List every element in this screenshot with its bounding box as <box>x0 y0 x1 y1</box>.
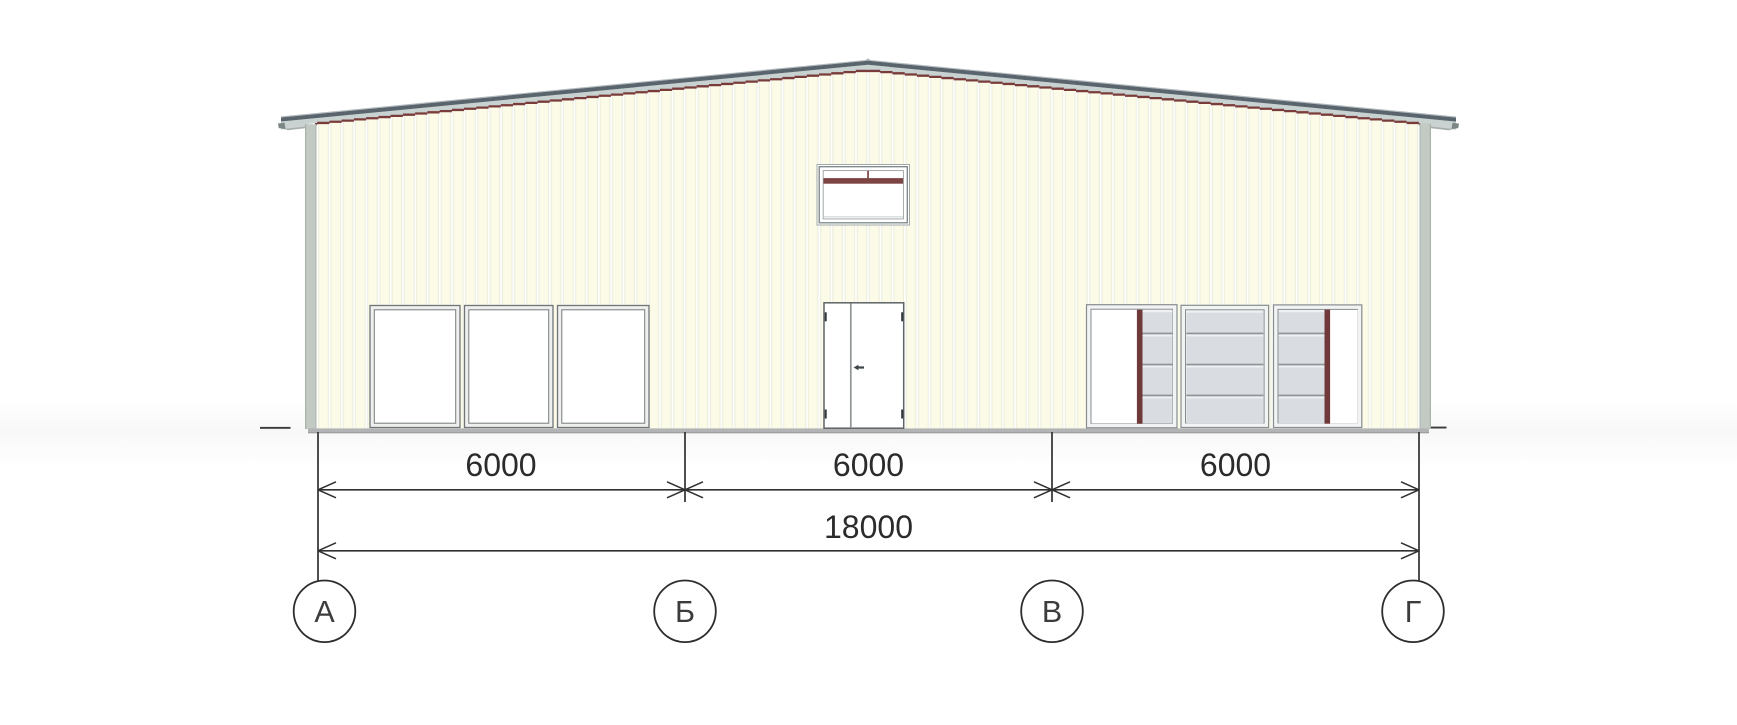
svg-text:А: А <box>314 595 335 629</box>
svg-text:6000: 6000 <box>1200 447 1271 483</box>
svg-text:18000: 18000 <box>824 509 913 545</box>
svg-text:В: В <box>1042 595 1062 629</box>
svg-text:6000: 6000 <box>465 447 536 483</box>
svg-text:6000: 6000 <box>833 447 904 483</box>
svg-text:Б: Б <box>675 595 695 629</box>
svg-text:Г: Г <box>1405 595 1422 629</box>
